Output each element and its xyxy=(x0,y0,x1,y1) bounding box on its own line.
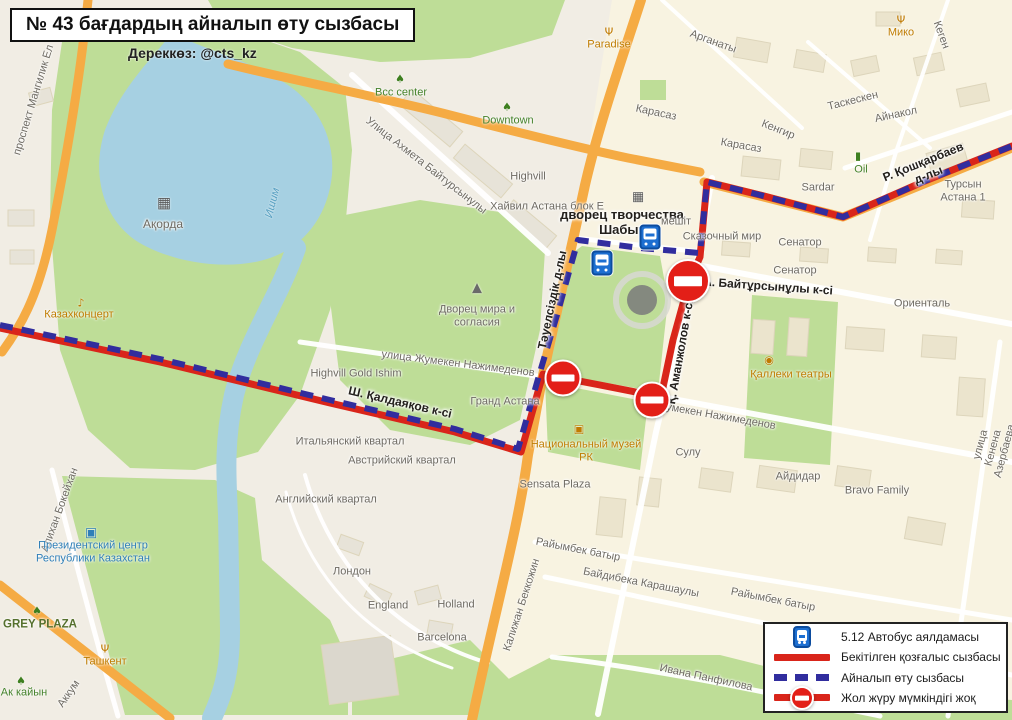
map-label: Кеген xyxy=(930,19,952,50)
map-label: Хайвил Астана блок Е xyxy=(490,201,604,214)
map-label: Қ. Аманжолов к-сі xyxy=(665,299,697,406)
map-label: Айнакол xyxy=(874,104,919,125)
restaurant-icon: Ψ xyxy=(897,15,906,26)
road-closed-symbol xyxy=(774,694,830,701)
map-label: Карасаз xyxy=(634,103,677,124)
map-label: Р. Қошқарбаев д-лы xyxy=(881,140,971,198)
map-label: Кенгир xyxy=(759,118,796,143)
restaurant-icon: Ψ xyxy=(101,644,110,655)
map-label: Арганаты xyxy=(688,28,738,56)
map-label: Байдибека Карашаулы xyxy=(582,566,700,601)
map-screenshot: проспект Мангилик ЕлАқордаИшимКазахконце… xyxy=(0,0,1012,720)
map-label: Президентский центр Республики Казахстан xyxy=(36,539,150,564)
legend-item-road-closed: Жол жүру мүмкіндігі жоқ xyxy=(773,688,998,708)
no-entry-icon xyxy=(545,360,582,397)
map-label: дворец творчества Шабыт xyxy=(560,208,684,238)
legend: 5.12 Автобус аялдамасы Бекітілген қозғал… xyxy=(763,622,1008,713)
map-label: Айдидар xyxy=(776,471,821,484)
restaurant-icon: Ψ xyxy=(605,27,614,38)
map-label: Аккум xyxy=(55,678,83,710)
map-label: Турсын Астана 1 xyxy=(939,178,988,203)
legend-item-detour-route: Айналып өту сызбасы xyxy=(773,668,998,688)
map-label: А. Байтұрсынұлы к-сі xyxy=(703,276,834,299)
map-overlay: проспект Мангилик ЕлАқордаИшимКазахконце… xyxy=(0,0,1012,720)
map-label: Австрийский квартал xyxy=(348,455,456,468)
map-label: Sardar xyxy=(801,182,834,195)
map-label: Highvill Gold Ishim xyxy=(310,368,401,381)
map-label: Сенатор xyxy=(773,265,816,278)
map-label: Жумекен Нажимеденов xyxy=(655,399,776,432)
bus-stop-icon xyxy=(640,225,661,250)
map-label: проспект Мангилик Ел xyxy=(11,43,57,156)
map-label: Қаллеки театры xyxy=(750,369,831,382)
tree-icon: ♠ xyxy=(16,676,26,687)
map-label: Итальянский квартал xyxy=(296,436,405,449)
theater-icon: ◉ xyxy=(764,355,774,366)
culture-palace-icon: ▦ xyxy=(632,191,644,204)
bus-stop-icon xyxy=(793,626,811,648)
map-label: Ориенталь xyxy=(894,298,950,311)
map-title-text: № 43 бағдардың айналып өту сызбасы xyxy=(26,14,399,35)
bus-stop-icon xyxy=(592,251,613,276)
detour-route-symbol xyxy=(774,674,830,681)
map-label: Мико xyxy=(888,27,914,40)
no-entry-icon xyxy=(634,382,671,419)
map-label: Райымбек батыр xyxy=(535,536,622,565)
map-label: улица Кенена Азербаева xyxy=(968,417,1012,480)
legend-label-bus-stop: 5.12 Автобус аялдамасы xyxy=(841,630,979,644)
map-label: Downtown xyxy=(482,115,533,128)
map-label: Гранд Астана xyxy=(470,396,539,409)
pyramid-icon: ▲ xyxy=(472,282,482,295)
map-label: Национальный музей РК xyxy=(531,438,642,463)
president-center-icon: ▣ xyxy=(85,527,97,540)
tree-icon: ♠ xyxy=(32,606,42,617)
map-label: Paradise xyxy=(587,39,630,52)
legend-label-approved-route: Бекітілген қозғалыс сызбасы xyxy=(841,650,1001,664)
map-label: Райымбек батыр xyxy=(730,586,817,615)
map-label: Ш. Қалдаяқов к-сі xyxy=(347,384,453,421)
tree-icon: ♠ xyxy=(395,74,405,85)
map-label: Казахконцерт xyxy=(44,309,113,322)
map-label: Ак кайын xyxy=(1,687,48,700)
legend-label-detour-route: Айналып өту сызбасы xyxy=(841,671,964,685)
legend-label-road-closed: Жол жүру мүмкіндігі жоқ xyxy=(841,691,976,705)
map-label: Ақорда xyxy=(143,218,183,232)
map-label: Алихан Бокейхан xyxy=(39,466,81,554)
government-icon: ▦ xyxy=(157,196,171,211)
music-icon: ♪ xyxy=(77,298,84,309)
map-label: Тәуелсіздік д-лы xyxy=(536,249,570,350)
map-label: England xyxy=(368,600,408,613)
museum-icon: ▣ xyxy=(574,424,584,435)
map-title: № 43 бағдардың айналып өту сызбасы xyxy=(10,8,415,42)
map-label: Oil xyxy=(854,164,867,177)
map-label: Английский квартал xyxy=(275,494,377,507)
map-label: Сказочный мир xyxy=(683,231,762,244)
map-label: Holland xyxy=(437,599,474,612)
map-label: Ишим xyxy=(263,187,283,220)
legend-item-bus-stop: 5.12 Автобус аялдамасы xyxy=(773,627,998,647)
legend-item-approved-route: Бекітілген қозғалыс сызбасы xyxy=(773,647,998,667)
tree-icon: ♠ xyxy=(502,102,512,113)
map-label: Лондон xyxy=(333,566,371,579)
fuel-icon: ▮ xyxy=(855,151,861,162)
map-label: Сенатор xyxy=(778,237,821,250)
map-label: улица Жумекен Нажимеденов xyxy=(381,348,536,379)
map-label: Bcc center xyxy=(375,87,427,100)
map-label: Highvill xyxy=(510,171,545,184)
map-label: Ташкент xyxy=(83,656,126,669)
no-entry-icon xyxy=(790,686,814,710)
source-credit: Дереккөз: @cts_kz xyxy=(128,45,257,61)
map-label: Калижан Беккожин xyxy=(501,557,543,653)
map-label: Дворец мира и согласия xyxy=(439,303,515,328)
map-label: Ивана Панфилова xyxy=(658,662,753,694)
map-label: Карасаз xyxy=(720,136,763,156)
map-label: Bravo Family xyxy=(845,485,909,498)
map-label: Сулу xyxy=(675,447,700,460)
approved-route-symbol xyxy=(774,654,830,661)
no-entry-icon xyxy=(666,259,710,303)
map-label: Sensata Plaza xyxy=(520,479,591,492)
map-label: Улица Ахмета Байтурсынулы xyxy=(363,115,489,217)
map-label: мешіт xyxy=(661,216,691,229)
map-label: Barcelona xyxy=(417,632,467,645)
map-label: Таскескен xyxy=(826,89,879,114)
map-label: GREY PLAZA xyxy=(3,618,77,631)
